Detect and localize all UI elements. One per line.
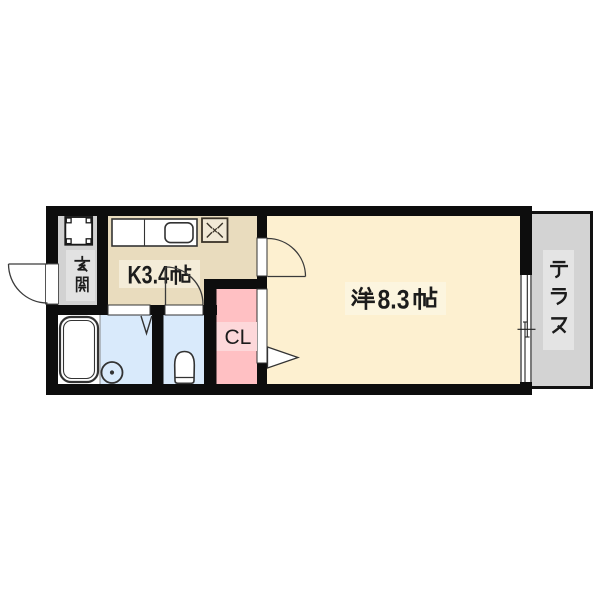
svg-text:8.3: 8.3 bbox=[378, 285, 410, 315]
svg-text:CL: CL bbox=[225, 326, 252, 349]
svg-text:K3.4: K3.4 bbox=[128, 262, 170, 290]
